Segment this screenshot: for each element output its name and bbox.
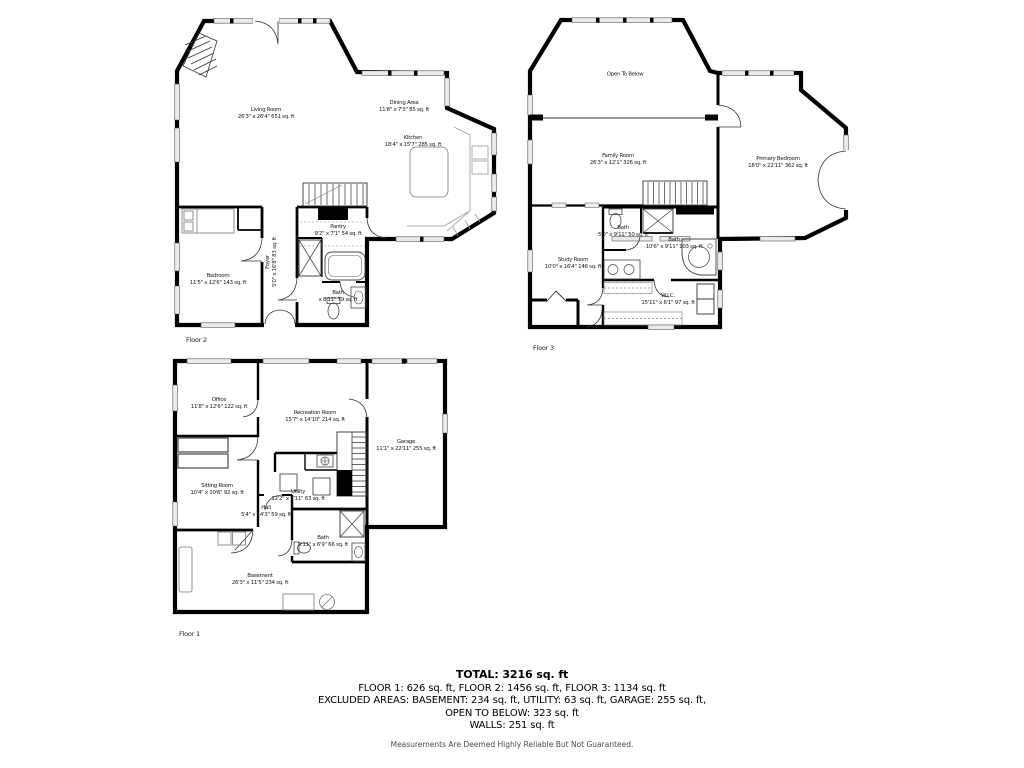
kitchen-label: Kitchen 18'4" x 15'7" 285 sq. ft bbox=[385, 135, 441, 149]
room-name: Foyer bbox=[265, 237, 272, 287]
floor-areas-text: FLOOR 1: 626 sq. ft, FLOOR 2: 1456 sq. f… bbox=[0, 683, 1024, 694]
room-name: Study Room bbox=[545, 257, 601, 264]
room-dims: 9'11" x 6'9" 66 sq. ft bbox=[298, 542, 348, 549]
room-dims: 26'3" x 11'5" 234 sq. ft bbox=[232, 580, 288, 587]
room-dims: 26'3" x 26'4" 651 sq. ft bbox=[238, 114, 294, 121]
room-name: Bath bbox=[298, 535, 348, 542]
floorplan-canvas bbox=[0, 0, 1024, 768]
room-name: Basement bbox=[232, 573, 288, 580]
floor1-bath-label: Bath 9'11" x 6'9" 66 sq. ft bbox=[298, 535, 348, 549]
room-dims: 15'11" x 6'1" 97 sq. ft bbox=[641, 300, 694, 307]
room-name: Family Room bbox=[590, 153, 646, 160]
open-to-below-label: Open To Below bbox=[607, 71, 644, 78]
study-room-label: Study Room 10'0" x 16'4" 146 sq. ft bbox=[545, 257, 601, 271]
dining-area-label: Dining Area 11'8" x 7'3" 85 sq. ft bbox=[379, 100, 429, 114]
room-name: Primary Bedroom bbox=[748, 156, 808, 163]
room-name: Bedroom bbox=[190, 273, 246, 280]
room-name: Pantry bbox=[315, 224, 362, 231]
area-summary: TOTAL: 3216 sq. ft FLOOR 1: 626 sq. ft, … bbox=[0, 668, 1024, 749]
pantry-label: Pantry 9'2" x 7'1" 54 sq. ft bbox=[315, 224, 362, 238]
open-to-below-text: OPEN TO BELOW: 323 sq. ft bbox=[0, 708, 1024, 719]
room-name: W.I.C. bbox=[641, 293, 694, 300]
room-dims: 5'0" x 9'11" 50 sq. ft bbox=[598, 232, 648, 239]
sitting-room-label: Sitting Room 10'4" x 10'6" 92 sq. ft bbox=[190, 483, 243, 497]
garage-label: Garage 11'1" x 22'11" 255 sq. ft bbox=[376, 439, 436, 453]
room-dims: 12'2" x 7'11" 63 sq. ft bbox=[271, 496, 324, 503]
wic-label: W.I.C. 15'11" x 6'1" 97 sq. ft bbox=[641, 293, 694, 307]
floor3-bath-small-label: Bath 5'0" x 9'11" 50 sq. ft bbox=[598, 225, 648, 239]
room-name: Dining Area bbox=[379, 100, 429, 107]
room-dims: x 8'11" 79 sq. ft bbox=[319, 297, 358, 304]
hall-label: Hall 5'4" x 14'3" 59 sq. ft bbox=[241, 505, 291, 519]
room-dims: 15'7" x 14'10" 214 sq. ft bbox=[285, 417, 345, 424]
room-dims: 5'0" x 16'8" 83 sq. ft bbox=[272, 237, 279, 287]
excluded-areas-text: EXCLUDED AREAS: BASEMENT: 234 sq. ft, UT… bbox=[0, 695, 1024, 706]
room-name: Sitting Room bbox=[190, 483, 243, 490]
floor-3-tag: Floor 3 bbox=[533, 344, 554, 352]
room-name: Living Room bbox=[238, 107, 294, 114]
room-name: Bath bbox=[319, 290, 358, 297]
basement-label: Basement 26'3" x 11'5" 234 sq. ft bbox=[232, 573, 288, 587]
room-name: Open To Below bbox=[607, 71, 644, 78]
room-name: Kitchen bbox=[385, 135, 441, 142]
room-dims: 10'0" x 16'4" 146 sq. ft bbox=[545, 264, 601, 271]
recreation-room-label: Recreation Room 15'7" x 14'10" 214 sq. f… bbox=[285, 410, 345, 424]
room-name: Bath bbox=[646, 237, 702, 244]
bedroom-label: Bedroom 11'5" x 12'6" 143 sq. ft bbox=[190, 273, 246, 287]
room-name: Utility bbox=[271, 489, 324, 496]
room-dims: 10'4" x 10'6" 92 sq. ft bbox=[190, 490, 243, 497]
room-dims: 11'5" x 12'6" 143 sq. ft bbox=[190, 280, 246, 287]
room-dims: 9'2" x 7'1" 54 sq. ft bbox=[315, 231, 362, 238]
room-name: Hall bbox=[241, 505, 291, 512]
office-label: Office 11'8" x 12'6" 122 sq. ft bbox=[191, 397, 247, 411]
floor2-bath-label: Bath x 8'11" 79 sq. ft bbox=[319, 290, 358, 304]
total-area-text: TOTAL: 3216 sq. ft bbox=[0, 668, 1024, 681]
floor3-bath-large-label: Bath 10'6" x 9'11" 103 sq. ft bbox=[646, 237, 702, 251]
disclaimer-text: Measurements Are Deemed Highly Reliable … bbox=[0, 740, 1024, 749]
room-name: Bath bbox=[598, 225, 648, 232]
floor-2-tag: Floor 2 bbox=[186, 336, 207, 344]
foyer-label: Foyer 5'0" x 16'8" 83 sq. ft bbox=[265, 237, 279, 287]
room-dims: 18'4" x 15'7" 285 sq. ft bbox=[385, 142, 441, 149]
room-name: Office bbox=[191, 397, 247, 404]
room-name: Recreation Room bbox=[285, 410, 345, 417]
family-room-label: Family Room 26'3" x 12'1" 326 sq. ft bbox=[590, 153, 646, 167]
room-dims: 11'1" x 22'11" 255 sq. ft bbox=[376, 446, 436, 453]
living-room-label: Living Room 26'3" x 26'4" 651 sq. ft bbox=[238, 107, 294, 121]
room-dims: 11'8" x 7'3" 85 sq. ft bbox=[379, 107, 429, 114]
room-dims: 5'4" x 14'3" 59 sq. ft bbox=[241, 512, 291, 519]
walls-area-text: WALLS: 251 sq. ft bbox=[0, 720, 1024, 731]
primary-bedroom-label: Primary Bedroom 18'0" x 22'11" 362 sq. f… bbox=[748, 156, 808, 170]
utility-label: Utility 12'2" x 7'11" 63 sq. ft bbox=[271, 489, 324, 503]
room-dims: 26'3" x 12'1" 326 sq. ft bbox=[590, 160, 646, 167]
room-dims: 10'6" x 9'11" 103 sq. ft bbox=[646, 244, 702, 251]
floor-1-tag: Floor 1 bbox=[179, 630, 200, 638]
room-dims: 11'8" x 12'6" 122 sq. ft bbox=[191, 404, 247, 411]
floor-3-plan bbox=[528, 18, 851, 330]
room-name: Garage bbox=[376, 439, 436, 446]
room-dims: 18'0" x 22'11" 362 sq. ft bbox=[748, 163, 808, 170]
